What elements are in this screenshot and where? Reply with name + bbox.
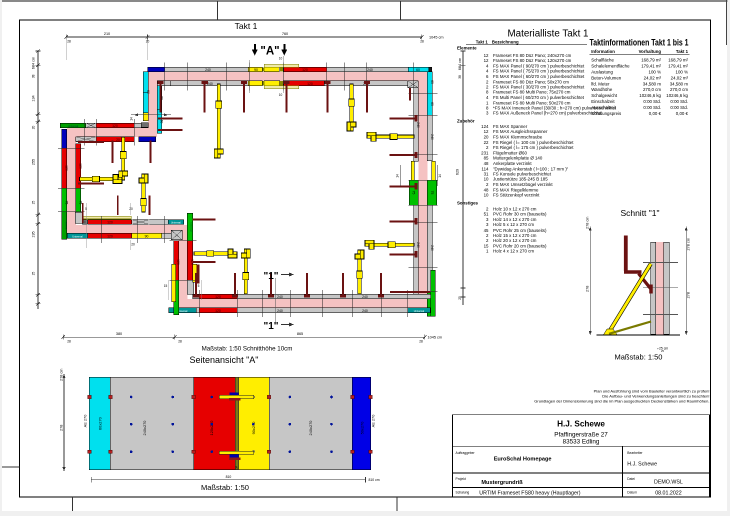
svg-text:120: 120 <box>107 221 113 225</box>
svg-text:08.01.2022: 08.01.2022 <box>655 490 682 496</box>
svg-text:240: 240 <box>362 295 368 299</box>
svg-text:PVC Rohr 30 cm (bauseits): PVC Rohr 30 cm (bauseits) <box>493 212 547 217</box>
svg-text:Schnitt "1": Schnitt "1" <box>620 208 659 218</box>
svg-text:60: 60 <box>430 80 434 84</box>
svg-text:120: 120 <box>107 234 113 238</box>
svg-text:Universal: Universal <box>72 235 83 238</box>
svg-text:Frameset FS 80 Düz Pano; 120x2: Frameset FS 80 Düz Pano; 120x270 cm <box>493 58 572 63</box>
svg-text:168,79 m²: 168,79 m² <box>641 58 661 63</box>
svg-text:Holz 5 x 12 x 270 cm: Holz 5 x 12 x 270 cm <box>493 222 534 227</box>
svg-text:168,79 m²: 168,79 m² <box>668 58 688 63</box>
svg-text:120: 120 <box>176 259 180 265</box>
svg-text:120: 120 <box>65 165 69 171</box>
svg-text:278 cm: 278 cm <box>687 238 691 250</box>
svg-text:60: 60 <box>416 68 420 72</box>
svg-text:FS MAX Panel ( 60/270 cm ) pul: FS MAX Panel ( 60/270 cm ) pulverbeschic… <box>493 74 585 79</box>
svg-text:810 cm: 810 cm <box>369 478 380 482</box>
svg-text:5: 5 <box>85 207 87 211</box>
svg-text:629: 629 <box>456 169 460 175</box>
svg-text:"1": "1" <box>263 321 278 332</box>
svg-text:20: 20 <box>131 243 135 247</box>
svg-text:10: 10 <box>484 192 489 197</box>
svg-text:195: 195 <box>32 231 36 237</box>
svg-text:"A": "A" <box>260 46 279 58</box>
svg-text:20: 20 <box>129 207 133 211</box>
svg-text:120: 120 <box>215 309 221 313</box>
svg-text:FS MAX Ausgleichsspanner: FS MAX Ausgleichsspanner <box>493 129 548 134</box>
svg-text:Vorhaltung: Vorhaltung <box>639 49 662 54</box>
svg-text:Sonstiges: Sonstiges <box>457 201 479 206</box>
svg-text:240: 240 <box>430 134 434 140</box>
svg-text:Auslastung: Auslastung <box>591 70 613 75</box>
svg-text:90: 90 <box>145 234 149 238</box>
svg-text:1045 cm: 1045 cm <box>428 335 443 339</box>
svg-text:H.J. Schewe: H.J. Schewe <box>557 420 605 429</box>
svg-text:Seitenansicht "A": Seitenansicht "A" <box>190 355 259 365</box>
svg-text:Zubehör: Zubehör <box>457 118 475 123</box>
svg-text:Datum: Datum <box>627 491 637 495</box>
svg-text:20: 20 <box>146 40 150 44</box>
svg-text:Materialliste Takt 1: Materialliste Takt 1 <box>508 29 589 40</box>
svg-text:760: 760 <box>282 32 288 36</box>
svg-text:380: 380 <box>116 332 122 336</box>
svg-text:lfd. Meter: lfd. Meter <box>591 81 610 86</box>
svg-text:240: 240 <box>367 68 373 72</box>
svg-text:Takt 1: Takt 1 <box>235 21 258 31</box>
svg-text:Bezeichnung: Bezeichnung <box>492 39 519 44</box>
svg-text:Maßstab: 1:50: Maßstab: 1:50 <box>201 483 249 492</box>
svg-text:810: 810 <box>226 475 232 479</box>
svg-text:FS MAX Außeneck Panel (h=270 c: FS MAX Außeneck Panel (h=270 cm) pulverb… <box>493 111 602 116</box>
svg-text:"1": "1" <box>263 271 278 282</box>
svg-text:10246,6 kg: 10246,6 kg <box>666 93 688 98</box>
svg-text:75: 75 <box>412 191 416 195</box>
svg-text:50x270: 50x270 <box>360 421 365 435</box>
svg-text:255: 255 <box>32 159 36 165</box>
svg-text:28: 28 <box>67 340 71 344</box>
svg-text:Justierstütze 185-245 B 185: Justierstütze 185-245 B 185 <box>493 177 548 182</box>
svg-text:AE 270: AE 270 <box>83 414 88 428</box>
svg-text:FS Stützenkopf verzinkt: FS Stützenkopf verzinkt <box>493 192 540 197</box>
svg-text:0:00 Std.: 0:00 Std. <box>643 99 661 104</box>
svg-text:25: 25 <box>32 201 36 205</box>
svg-text:14: 14 <box>396 174 400 178</box>
svg-text:12: 12 <box>484 58 489 63</box>
svg-text:100 %: 100 % <box>676 70 689 75</box>
svg-text:240: 240 <box>205 68 211 72</box>
svg-text:Maßstab: 1:50: Maßstab: 1:50 <box>615 353 663 362</box>
svg-text:120: 120 <box>302 68 308 72</box>
svg-text:120: 120 <box>307 82 313 86</box>
svg-text:14: 14 <box>130 117 134 121</box>
svg-text:Information: Information <box>591 49 615 54</box>
svg-text:270,0 cm: 270,0 cm <box>643 87 661 92</box>
svg-text:278: 278 <box>586 286 590 292</box>
svg-text:278: 278 <box>59 425 63 431</box>
svg-text:0,00 €: 0,00 € <box>649 111 662 116</box>
svg-text:Grundlagen der Dimensionierung: Grundlagen der Dimensionierung sind die … <box>534 399 709 404</box>
svg-text:684 cm: 684 cm <box>458 58 462 70</box>
svg-text:28: 28 <box>178 340 182 344</box>
svg-text:Holz 20 x 12 x 270 cm: Holz 20 x 12 x 270 cm <box>493 238 537 243</box>
svg-text:120: 120 <box>78 163 82 169</box>
svg-text:Holz 4 x 12 x 270 cm: Holz 4 x 12 x 270 cm <box>493 249 534 254</box>
svg-text:Taktinformationen Takt 1 bis: Taktinformationen Takt 1 bis 1 <box>590 37 689 47</box>
svg-text:120: 120 <box>215 295 221 299</box>
svg-text:100 %: 100 % <box>649 70 662 75</box>
svg-text:Universal: Universal <box>64 220 67 230</box>
svg-text:278 cm: 278 cm <box>59 369 63 381</box>
svg-text:Projekt: Projekt <box>456 477 466 481</box>
svg-text:24,02 m³: 24,02 m³ <box>644 75 662 80</box>
svg-text:Pfaffingerstraße 27: Pfaffingerstraße 27 <box>554 431 608 438</box>
svg-text:Schalfläche: Schalfläche <box>591 58 614 63</box>
svg-text:60: 60 <box>160 120 164 124</box>
svg-text:Schalelementfläche: Schalelementfläche <box>591 64 630 69</box>
svg-text:120x270: 120x270 <box>209 420 214 436</box>
svg-text:20: 20 <box>116 138 120 142</box>
svg-text:60x270: 60x270 <box>98 416 103 430</box>
svg-text:240x270: 240x270 <box>308 420 313 436</box>
svg-text:120: 120 <box>112 124 118 128</box>
svg-text:0,00 €: 0,00 € <box>676 111 689 116</box>
svg-text:Maßstab: 1:50 Schnitthöhe 10: Maßstab: 1:50 Schnitthöhe 10cm <box>202 346 293 353</box>
svg-text:10246,6 kg: 10246,6 kg <box>639 93 661 98</box>
svg-text:51: 51 <box>484 212 489 217</box>
svg-text:Schalgewicht: Schalgewicht <box>591 93 618 98</box>
svg-text:865: 865 <box>297 332 303 336</box>
svg-text:Takt 1: Takt 1 <box>676 49 689 54</box>
svg-text:Datei: Datei <box>627 477 635 481</box>
svg-text:24,02 m³: 24,02 m³ <box>671 75 689 80</box>
svg-text:Ankerplatte verzinkt: Ankerplatte verzinkt <box>493 161 532 166</box>
svg-text:URTIM Frameset FS80 heavy (Hau: URTIM Frameset FS80 heavy (Hauptlager) <box>479 490 580 496</box>
svg-text:75: 75 <box>65 201 69 205</box>
svg-text:EuroSchal Homepage: EuroSchal Homepage <box>494 457 552 463</box>
svg-text:Einschalzeit: Einschalzeit <box>591 99 615 104</box>
svg-text:14: 14 <box>438 174 442 178</box>
svg-text:210: 210 <box>104 32 110 36</box>
svg-text:Universal: Universal <box>414 310 425 313</box>
svg-text:10: 10 <box>279 93 283 97</box>
svg-text:5: 5 <box>198 284 200 288</box>
svg-text:FS Riegel ( l= 175 cm ) pulver: FS Riegel ( l= 175 cm ) pulverbeschichte… <box>493 145 574 150</box>
svg-text:240: 240 <box>416 122 420 128</box>
svg-text:20: 20 <box>32 126 36 130</box>
svg-text:134: 134 <box>236 465 239 470</box>
svg-text:278 cm: 278 cm <box>586 217 590 229</box>
svg-text:Mustergrundriß: Mustergrundriß <box>481 480 523 486</box>
svg-text:Elemente: Elemente <box>457 46 477 51</box>
svg-text:25: 25 <box>32 272 36 276</box>
svg-text:12: 12 <box>484 129 489 134</box>
svg-text:Auftraggeber: Auftraggeber <box>456 451 476 455</box>
svg-text:Universal: Universal <box>171 222 181 225</box>
svg-text:Schalung: Schalung <box>456 491 470 495</box>
svg-text:179,41 m²: 179,41 m² <box>641 64 661 69</box>
svg-text:28: 28 <box>67 40 71 44</box>
svg-text:240x270: 240x270 <box>142 420 147 436</box>
svg-text:0:00 Std.: 0:00 Std. <box>643 105 661 110</box>
svg-text:34,580 m: 34,580 m <box>670 81 689 86</box>
svg-text:Schalungspreis: Schalungspreis <box>591 111 622 116</box>
svg-text:60: 60 <box>430 102 434 106</box>
svg-text:15: 15 <box>164 284 168 288</box>
svg-text:34,580 m: 34,580 m <box>643 81 662 86</box>
svg-text:28: 28 <box>419 340 423 344</box>
svg-text:240: 240 <box>430 245 434 251</box>
svg-text:0:00 Std.: 0:00 Std. <box>670 105 688 110</box>
svg-text:0:00 Std.: 0:00 Std. <box>670 99 688 104</box>
svg-text:270,0 cm: 270,0 cm <box>670 87 688 92</box>
svg-text:Universal: Universal <box>68 125 79 128</box>
svg-text:1045 cm: 1045 cm <box>429 36 444 40</box>
svg-text:240: 240 <box>416 242 420 248</box>
svg-text:75: 75 <box>430 191 434 195</box>
svg-text:60: 60 <box>146 90 150 94</box>
svg-text:H.J. Schewe: H.J. Schewe <box>627 462 657 468</box>
svg-text:Ausschalzeit: Ausschalzeit <box>591 105 616 110</box>
svg-text:83533 Edling: 83533 Edling <box>563 438 600 445</box>
svg-text:240: 240 <box>277 309 283 313</box>
svg-text:Wandhöhe: Wandhöhe <box>591 87 613 92</box>
svg-text:684 cm: 684 cm <box>32 57 36 69</box>
svg-text:90: 90 <box>254 68 258 72</box>
svg-text:38: 38 <box>458 75 462 79</box>
svg-text:10: 10 <box>484 177 489 182</box>
svg-text:48: 48 <box>484 161 489 166</box>
svg-text:DEMO.WSL: DEMO.WSL <box>654 480 683 486</box>
svg-text:25: 25 <box>458 296 462 300</box>
svg-text:28: 28 <box>420 40 424 44</box>
svg-text:Takt 1: Takt 1 <box>476 39 489 44</box>
svg-text:Frameset FS 80 Multi Pano; 75x: Frameset FS 80 Multi Pano; 75x270 cm <box>493 90 571 95</box>
svg-text:Beton-Volumen: Beton-Volumen <box>591 75 622 80</box>
svg-text:Universal: Universal <box>189 222 192 232</box>
svg-text:240: 240 <box>207 82 213 86</box>
svg-text:179,41 m²: 179,41 m² <box>668 64 688 69</box>
svg-text:240: 240 <box>362 309 368 313</box>
svg-text:Bearbeiter: Bearbeiter <box>627 451 643 455</box>
svg-text:240: 240 <box>277 295 283 299</box>
svg-text:38: 38 <box>32 74 36 78</box>
svg-text:278: 278 <box>687 292 691 298</box>
svg-text:AE 270: AE 270 <box>371 414 376 428</box>
svg-text:134: 134 <box>32 95 36 101</box>
